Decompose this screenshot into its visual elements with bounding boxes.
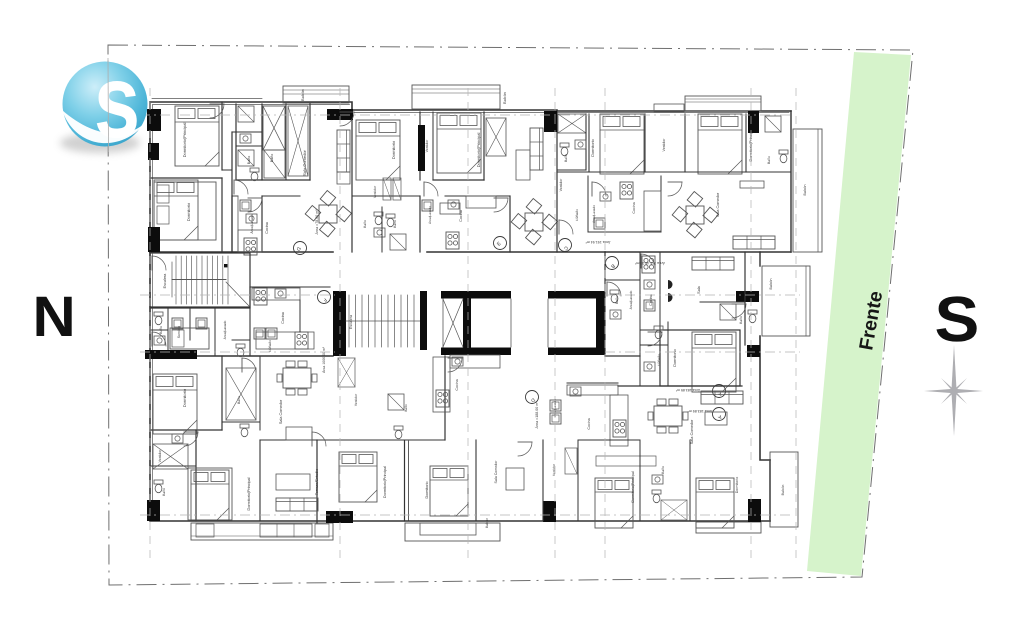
svg-text:Dormitorio: Dormitorio (591, 139, 595, 157)
svg-text:Cocina: Cocina (632, 202, 636, 213)
svg-text:Baño: Baño (162, 488, 166, 496)
svg-text:Área =78.00 m²: Área =78.00 m² (314, 209, 319, 235)
svg-text:F: F (322, 296, 328, 303)
svg-text:Baño: Baño (661, 466, 665, 474)
svg-text:Vestidor: Vestidor (354, 393, 358, 406)
svg-text:Balcón: Balcón (485, 518, 489, 528)
svg-text:Sala: Sala (697, 285, 701, 293)
svg-text:1/2Baño: 1/2Baño (657, 354, 661, 366)
svg-text:Sala-Comedor: Sala-Comedor (690, 419, 694, 444)
svg-text:A: A (716, 390, 723, 397)
svg-text:Baño: Baño (615, 296, 619, 304)
svg-text:Terraza/Estudio: Terraza/Estudio (315, 469, 319, 495)
svg-text:Dormitorio|Principal: Dormitorio|Principal (383, 466, 387, 498)
svg-text:Cocina: Cocina (455, 379, 459, 390)
svg-text:Cocina: Cocina (265, 221, 269, 234)
svg-text:Área|Lavado: Área|Lavado (250, 214, 254, 233)
svg-text:Balcón: Balcón (803, 185, 807, 196)
svg-text:Sala Comedor: Sala Comedor (494, 460, 498, 484)
svg-text:Vestidor: Vestidor (425, 139, 429, 152)
svg-text:Cocina: Cocina (459, 209, 463, 222)
svg-text:Dormitorio|Principal: Dormitorio|Principal (476, 132, 481, 167)
svg-text:S: S (934, 283, 979, 355)
svg-text:Baño: Baño (247, 156, 251, 164)
svg-text:Baño: Baño (393, 220, 397, 228)
svg-text:Área|Lavado: Área|Lavado (629, 291, 633, 310)
svg-text:Dormitorio: Dormitorio (735, 477, 739, 494)
svg-text:Sala Comedor: Sala Comedor (279, 399, 283, 424)
svg-text:C: C (562, 244, 569, 251)
svg-text:N: N (33, 285, 76, 349)
svg-text:Baño: Baño (237, 396, 241, 404)
svg-text:s: s (94, 44, 140, 160)
svg-text:Baño: Baño (404, 404, 408, 412)
svg-text:Baño: Baño (739, 316, 743, 324)
svg-text:Dormitorio: Dormitorio (182, 388, 187, 407)
svg-text:Baño: Baño (767, 156, 771, 164)
svg-text:Baño: Baño (270, 154, 274, 162)
svg-text:Vestidor: Vestidor (559, 178, 563, 191)
svg-text:A: A (716, 413, 723, 420)
svg-text:Área|Lavado: Área|Lavado (428, 206, 432, 224)
svg-text:Vestidor: Vestidor (662, 138, 666, 152)
svg-text:Cocina: Cocina (587, 418, 591, 429)
svg-text:Dormitorio|Principal: Dormitorio|Principal (631, 471, 635, 502)
svg-text:Vestidor: Vestidor (552, 463, 556, 476)
svg-text:E: E (496, 241, 503, 248)
svg-text:Área 191.94 m²: Área 191.94 m² (585, 240, 611, 245)
svg-text:Dormitorio: Dormitorio (391, 140, 396, 159)
svg-text:Balcón: Balcón (769, 279, 773, 290)
svg-text:Sala Comedor: Sala Comedor (716, 192, 720, 217)
svg-text:1/2Baño: 1/2Baño (268, 340, 272, 352)
svg-text:Escalera: Escalera (163, 273, 167, 289)
svg-text:Área 183.89 m²: Área 183.89 m² (675, 388, 700, 393)
svg-text:Sala-Comedor: Sala-Comedor (302, 149, 307, 175)
svg-text:Baño: Baño (159, 326, 163, 334)
svg-text:Área|Lavado: Área|Lavado (223, 321, 227, 340)
svg-text:1/2Baño: 1/2Baño (575, 209, 579, 221)
svg-text:Área 1006.00 m²: Área 1006.00 m² (321, 346, 326, 373)
svg-text:Dormitorio: Dormitorio (425, 481, 429, 498)
svg-text:Vestidor: Vestidor (158, 449, 162, 462)
svg-text:Dormitorio|Principal: Dormitorio|Principal (182, 122, 187, 157)
svg-text:Vestidor: Vestidor (373, 185, 377, 198)
svg-text:Dormitorio|Principal: Dormitorio|Principal (247, 477, 251, 510)
svg-text:Balcón: Balcón (301, 89, 305, 101)
svg-text:D: D (529, 396, 536, 403)
svg-text:Balcón: Balcón (781, 485, 785, 496)
svg-text:Escalera: Escalera (349, 315, 353, 329)
svg-text:Cocina: Cocina (281, 311, 285, 324)
svg-text:Área =188.00 m²: Área =188.00 m² (534, 401, 539, 429)
svg-text:Dormitorio: Dormitorio (186, 202, 191, 221)
svg-text:Baño: Baño (363, 220, 367, 228)
svg-text:B: B (609, 262, 616, 269)
svg-text:Balcón: Balcón (503, 92, 507, 104)
svg-text:Área 183.89 m²: Área 183.89 m² (687, 409, 713, 414)
svg-text:Baño: Baño (564, 154, 568, 162)
svg-text:Área|Lavado: Área|Lavado (592, 205, 596, 223)
